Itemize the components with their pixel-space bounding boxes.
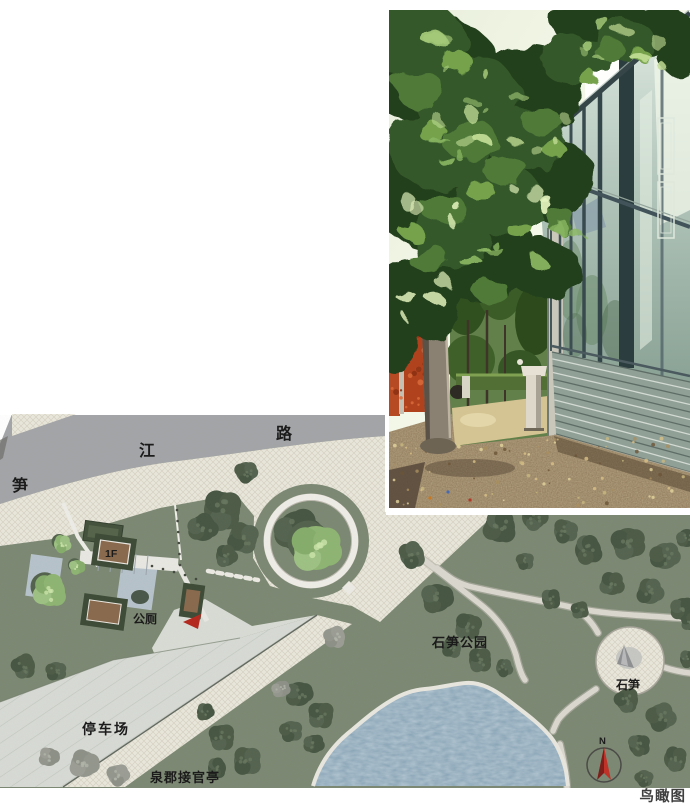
road-label-char3: 路 [276,424,293,443]
road-label-char1: 笋 [12,476,28,495]
compass-n-label: N [599,736,606,747]
road-label-char2: 江 [139,442,155,460]
park-label: 石笋公园 [431,635,488,650]
parking-label: 停车场 [82,721,130,737]
screenshot-root: 笋 江 路 1F 公厕 停车场 泉郡接官亭 石笋公园 石笋 N [0,0,690,812]
stone-label: 石笋 [615,677,640,692]
trunk-shadow [425,459,515,477]
pavilion-label: 泉郡接官亭 [150,770,220,785]
floor-label: 1F [105,548,118,560]
sheet-caption: 鸟瞰图 [640,787,687,805]
masterplan-sheet: 笋 江 路 1F 公厕 停车场 泉郡接官亭 石笋公园 石笋 N [0,0,690,812]
entrance-photo [355,0,690,508]
toilet-label: 公厕 [133,611,157,626]
